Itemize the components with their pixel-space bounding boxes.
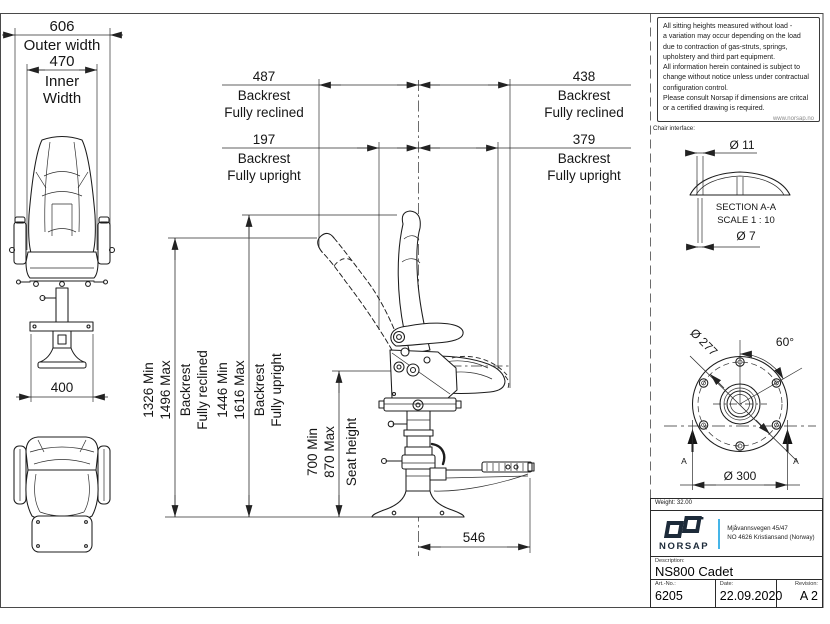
date-label: Date: [720,581,772,587]
dim-height-reclined-max: 1496 Max [158,360,173,420]
dim-inner-width-label-2: Width [43,90,81,107]
norsap-logo-icon [662,515,706,539]
dim-upright-rear-label-2: Fully upright [227,168,301,183]
website-link[interactable]: www.norsap.no [663,116,814,122]
title-block-bottom-row: Art.-No.: 6205 Date: 22.09.2020 Revision… [651,580,822,607]
revision-label: Revision: [781,581,818,587]
date-value: 22.09.2020 [720,589,772,603]
dim-reclined-front-label-1: Backrest [558,88,611,103]
dim-inner-width-label-1: Inner [45,73,79,90]
revision-value: A 2 [781,589,818,603]
brand-name: NORSAP [659,541,709,552]
note-line: All information herein contained is subj… [663,63,814,73]
front-view: 606 Outer width 470 Inner Width [2,18,123,402]
dim-upright-front-value: 379 [573,132,596,147]
dim-reclined-front-label-2: Fully reclined [544,105,624,120]
dim-height-upright-min: 1446 Min [215,362,230,418]
art-no-value: 6205 [655,589,711,603]
revision-cell: Revision: A 2 [777,580,822,607]
title-block: Weight: 32.00 NORSAP Mjåvannsvegen 45/47… [650,498,823,608]
note-line: All sitting heights measured without loa… [663,22,814,32]
front-view-chair [10,137,115,369]
description-value: NS800 Cadet [655,564,818,579]
dim-upright-front-label-2: Fully upright [547,168,621,183]
dim-upright-rear-value: 197 [253,132,276,147]
dim-reclined-rear-label-2: Fully reclined [224,105,304,120]
note-line: due to contraction of gas-struts, spring… [663,43,814,53]
dim-height-upright-max: 1616 Max [232,360,247,420]
note-line: upholstery and third part equipment. [663,53,814,63]
dim-reclined-front-value: 438 [573,69,596,84]
dim-height-upright-label-1: Backrest [252,363,267,416]
note-line: a variation may occur depending on the l… [663,32,814,42]
note-line: or a certified drawing is required. [663,104,814,114]
address-line-1: Mjåvannsvegen 45/47 [727,525,814,534]
logo-row: NORSAP Mjåvannsvegen 45/47 NO 4626 Krist… [651,511,822,557]
note-line: Please consult Norsap if dimensions are … [663,94,814,104]
dim-seat-height-label: Seat height [344,418,359,487]
dim-reclined-rear-label-1: Backrest [238,88,291,103]
dim-upright-rear-label-1: Backrest [238,151,291,166]
dim-height-reclined-min: 1326 Min [141,362,156,418]
notes-box: All sitting heights measured without loa… [657,17,820,122]
dim-height-reclined-label-1: Backrest [178,363,193,416]
top-view [14,437,110,552]
dim-upright-front-label-1: Backrest [558,151,611,166]
drawing-sheet: 606 Outer width 470 Inner Width [0,0,830,624]
right-panel: All sitting heights measured without loa… [650,13,823,608]
dim-footrest-depth-value: 546 [463,530,486,545]
dim-outer-width-label: Outer width [24,37,101,54]
side-view: 487 Backrest Fully reclined 438 Backrest… [141,69,631,556]
dim-outer-width-value: 606 [49,18,74,35]
company-address: Mjåvannsvegen 45/47 NO 4626 Kristiansand… [727,525,814,543]
address-line-2: NO 4626 Kristiansand (Norway) [727,534,814,543]
art-no-cell: Art.-No.: 6205 [651,580,716,607]
dim-seat-height-min: 700 Min [305,428,320,476]
art-no-label: Art.-No.: [655,581,711,587]
dim-height-reclined-label-2: Fully reclined [195,350,210,430]
description-cell: Description: NS800 Cadet [651,557,822,580]
logo-divider [718,519,720,549]
note-line: configuration control. [663,84,814,94]
dim-reclined-rear-value: 487 [253,69,276,84]
date-cell: Date: 22.09.2020 [716,580,777,607]
norsap-logo: NORSAP [659,515,709,552]
dim-seat-height-max: 870 Max [322,426,337,478]
dim-inner-width-value: 470 [49,53,74,70]
note-line: change without notice unless under contr… [663,73,814,83]
dim-base-width-value: 400 [51,380,74,395]
dim-height-upright-label-2: Fully upright [269,353,284,427]
chair-interface-label: Chair interface: [653,125,695,132]
weight-field: Weight: 32.00 [651,499,822,511]
